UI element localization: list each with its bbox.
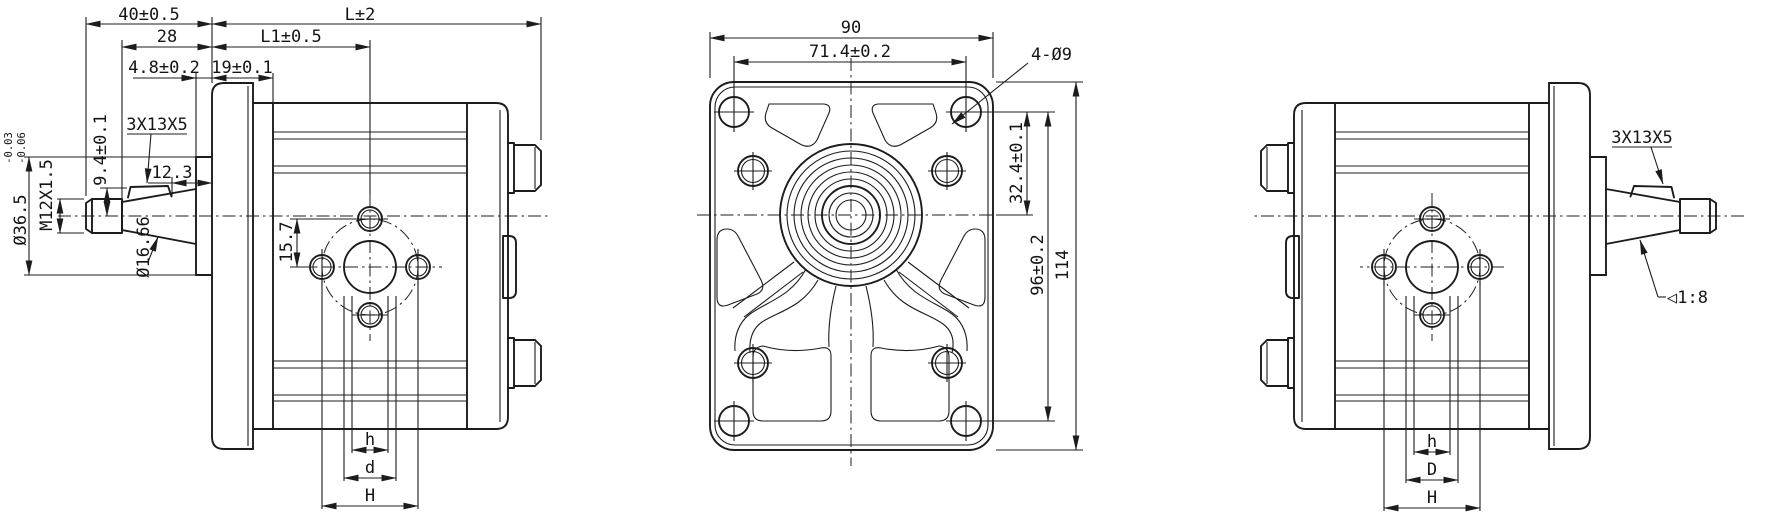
dim-114: 114: [1053, 250, 1073, 281]
thread-spec-label: M12X1.5: [37, 159, 57, 231]
front-view: 90 71.4±0.2 4-Ø9 32.4±0.1 96±0.2 114: [697, 18, 1083, 466]
dim-length-L: L±2: [345, 5, 376, 25]
dim-32-4: 32.4±0.1: [1007, 122, 1027, 204]
key-spec-label: 3X13X5: [126, 115, 187, 135]
dim-19: 19±0.1: [211, 58, 272, 78]
tolerance-upper: -0.03: [3, 132, 15, 164]
side-view-right: 3X13X5 ◁1:8 h D H: [1254, 83, 1744, 511]
tolerance-lower: -0.06: [16, 132, 28, 164]
dim-D-right: D: [1427, 460, 1437, 480]
dim-71-4: 71.4±0.2: [809, 42, 891, 62]
dim-L1: L1±0.5: [260, 27, 321, 47]
dim-96: 96±0.2: [1028, 234, 1048, 295]
dim-H-right: H: [1427, 488, 1437, 508]
dim-4-8: 4.8±0.2: [128, 58, 200, 78]
side-view-right-dimensions: 3X13X5 ◁1:8 h D H: [1384, 128, 1708, 511]
side-view-left: 40±0.5 L±2 28 L1±0.5 4.8±0.2 19±0.1 3X13…: [3, 5, 548, 509]
dim-overall-40: 40±0.5: [118, 5, 179, 25]
dim-h-right: h: [1427, 432, 1437, 452]
technical-drawing: 40±0.5 L±2 28 L1±0.5 4.8±0.2 19±0.1 3X13…: [0, 0, 1765, 529]
dim-28: 28: [157, 27, 177, 47]
dim-taper-diameter: Ø16.66: [134, 216, 154, 277]
dim-H-left: H: [365, 486, 375, 506]
dim-d-left: d: [365, 458, 375, 478]
taper-ratio-label: ◁1:8: [1666, 288, 1708, 308]
side-view-left-dimensions: 40±0.5 L±2 28 L1±0.5 4.8±0.2 19±0.1 3X13…: [3, 5, 541, 509]
dim-15-7: 15.7: [277, 222, 297, 263]
key-spec-label-right: 3X13X5: [1611, 128, 1672, 148]
dim-90: 90: [841, 18, 861, 38]
dim-9-4: 9.4±0.1: [91, 114, 111, 186]
dim-h-left: h: [365, 430, 375, 450]
dim-pilot-diameter: Ø36.5: [11, 194, 31, 245]
dim-12-3: 12.3: [152, 163, 193, 183]
corner-holes-label: 4-Ø9: [1031, 45, 1072, 65]
drawing-canvas: 40±0.5 L±2 28 L1±0.5 4.8±0.2 19±0.1 3X13…: [0, 0, 1765, 529]
